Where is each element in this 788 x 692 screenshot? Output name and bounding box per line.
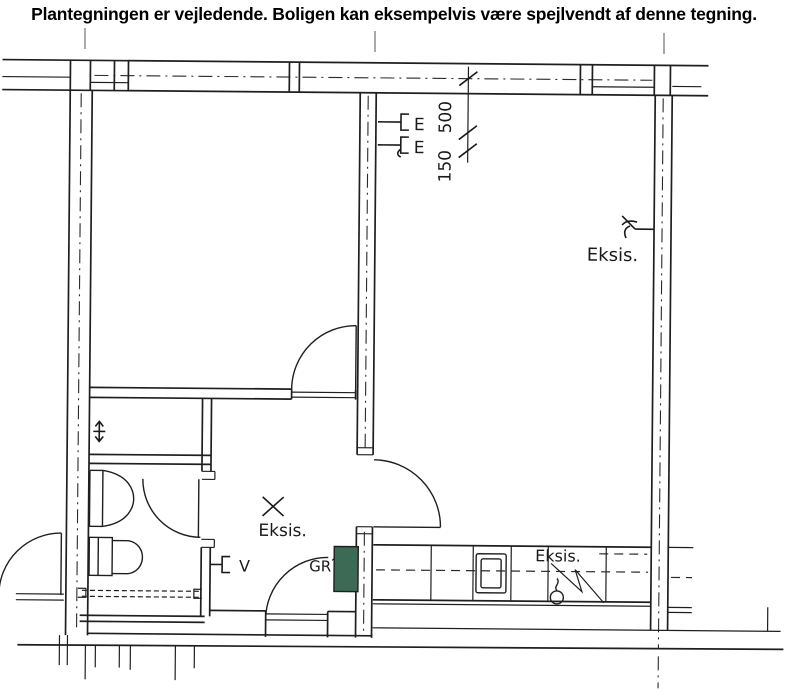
gas-symbol (550, 578, 563, 604)
label-eksis-hall: Eksis. (258, 521, 307, 541)
toilet (89, 537, 143, 575)
label-dim-150: 150 (435, 150, 455, 183)
right-party-wall (650, 95, 672, 688)
bathroom-door-arc (142, 479, 201, 538)
bedroom-door-arc (292, 325, 357, 390)
label-eksis-kitchen: Eksis. (535, 546, 581, 565)
floor-drain-symbol (93, 421, 105, 441)
floor-plan-drawing: Eksis. V GR (0, 0, 788, 692)
floor-plan-page: Plantegningen er vejledende. Boligen kan… (0, 0, 788, 692)
label-gr: GR (309, 557, 331, 575)
shower-threshold-hatch (78, 588, 202, 598)
bottom-walls (17, 609, 784, 686)
green-cabinet-marker (334, 546, 358, 591)
ventil-symbol (210, 556, 230, 572)
cooktop (476, 554, 506, 593)
label-outlet-2: E (414, 138, 425, 158)
appliance-zigzag (551, 563, 604, 602)
neighbour-counter (668, 547, 769, 631)
left-exterior-wall (65, 60, 92, 635)
label-eksis-right: Eksis. (587, 245, 638, 266)
electrical-outlet-symbol-2 (378, 137, 409, 157)
top-exterior-wall (2, 60, 708, 96)
washbasin (89, 470, 133, 526)
bedroom-wall (90, 387, 356, 399)
dimension-line: 500 150 (435, 66, 477, 182)
label-dim-500: 500 (436, 101, 456, 134)
electrical-outlet-symbol-1 (378, 114, 409, 130)
label-ventil: V (239, 557, 250, 576)
stairwell-door (0, 533, 64, 601)
antenna-outlet-symbol (622, 216, 654, 238)
livingroom-door-arc (373, 460, 441, 528)
registration-marks (85, 28, 664, 54)
bathroom-walls (88, 397, 216, 616)
kitchen-counter (373, 545, 652, 606)
cross-symbol (263, 497, 284, 516)
label-outlet-1: E (414, 115, 425, 135)
